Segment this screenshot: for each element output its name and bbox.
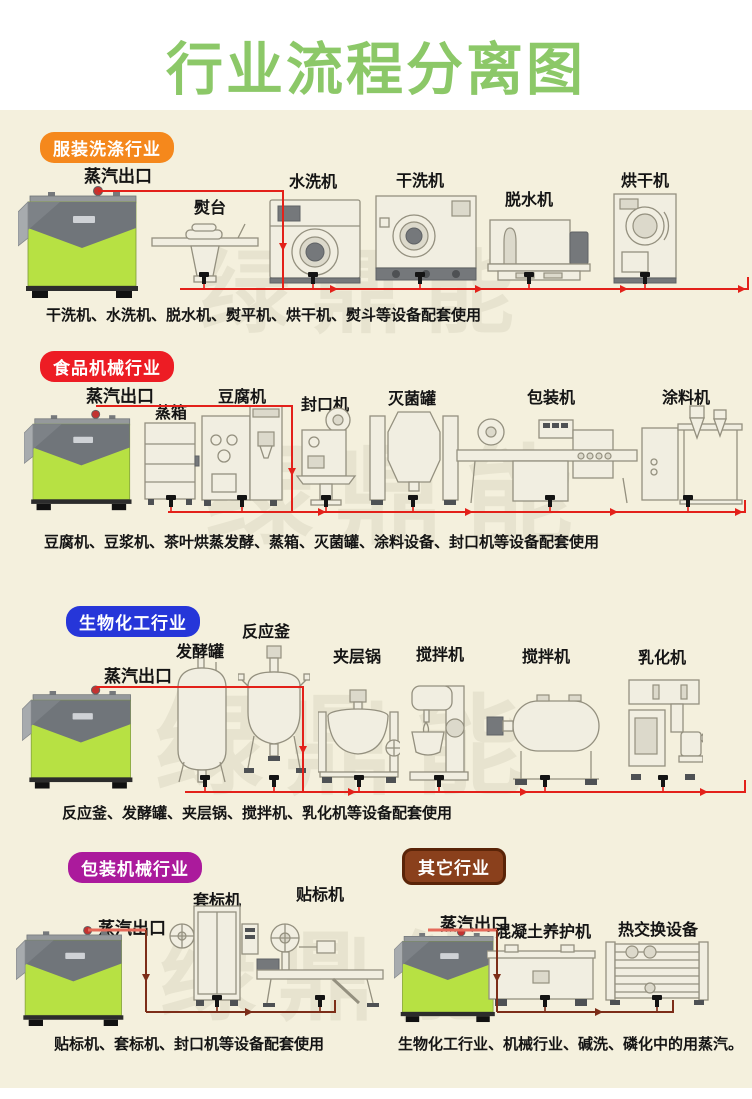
section-caption: 反应釜、发酵罐、夹层锅、搅拌机、乳化机等设备配套使用 xyxy=(62,802,452,823)
section-caption: 贴标机、套标机、封口机等设备配套使用 xyxy=(54,1033,324,1054)
section-caption: 豆腐机、豆浆机、茶叶烘蒸发酵、蒸箱、灭菌罐、涂料设备、封口机等设备配套使用 xyxy=(44,531,599,552)
machine-label: 贴标机 xyxy=(296,881,344,905)
section-other-industries: 其它行业 蒸汽出口 混凝土养护机 热交换设备 xyxy=(380,840,752,1088)
industry-badge: 食品机械行业 xyxy=(40,351,174,382)
dry-cleaning-machine-icon xyxy=(374,194,478,282)
concrete-curing-machine-icon xyxy=(487,943,597,1007)
sleeve-labeling-machine-icon xyxy=(168,902,266,1007)
section-packaging-machinery-industry: 包装机械行业 蒸汽出口 套标机 贴标机 xyxy=(0,840,380,1088)
steam-boiler-icon xyxy=(394,926,499,1024)
packing-machine-icon xyxy=(455,416,640,506)
steam-outlet-label: 蒸汽出口 xyxy=(84,162,152,187)
stand-mixer-icon xyxy=(406,676,472,786)
sealing-machine-icon xyxy=(295,406,357,506)
reactor-kettle-icon xyxy=(238,644,310,786)
section-caption: 生物化工行业、机械行业、碱洗、磷化中的用蒸汽。 xyxy=(398,1033,743,1054)
industry-badge: 服装洗涤行业 xyxy=(40,132,174,163)
drum-mixer-icon xyxy=(485,693,605,786)
coating-machine-icon xyxy=(640,404,745,506)
machine-label: 搅拌机 xyxy=(416,641,464,665)
poster-page: 行业流程分离图 绿鼎能 绿鼎能 绿鼎能 绿鼎能 服装洗涤行业 蒸汽出口 熨台 水… xyxy=(0,0,752,1099)
drying-machine-icon xyxy=(606,192,684,284)
section-laundry-industry: 服装洗涤行业 蒸汽出口 熨台 水洗机 干洗机 脱水机 烘干机 xyxy=(0,118,752,340)
section-caption: 干洗机、水洗机、脱水机、熨平机、烘干机、熨斗等设备配套使用 xyxy=(46,304,481,325)
machine-label: 水洗机 xyxy=(289,168,337,192)
machine-label: 搅拌机 xyxy=(522,643,570,667)
machine-label: 夹层锅 xyxy=(333,643,381,667)
steam-boiler-icon xyxy=(22,682,137,792)
industry-badge: 包装机械行业 xyxy=(68,852,202,883)
dehydrator-icon xyxy=(486,216,592,284)
steam-boiler-icon xyxy=(16,926,128,1026)
steam-boiler-icon xyxy=(18,186,143,298)
steam-boiler-icon xyxy=(24,403,136,517)
sterilization-tank-icon xyxy=(368,404,460,506)
page-title: 行业流程分离图 xyxy=(0,24,752,106)
machine-label: 热交换设备 xyxy=(618,916,698,940)
tofu-machine-icon xyxy=(200,404,285,506)
machine-label: 混凝土养护机 xyxy=(495,918,591,942)
fermentation-tank-icon xyxy=(172,658,232,786)
emulsifier-icon xyxy=(625,676,703,786)
machine-label: 反应釜 xyxy=(242,618,290,642)
machine-label: 乳化机 xyxy=(638,644,686,668)
jacketed-kettle-icon xyxy=(318,686,400,786)
machine-label: 烘干机 xyxy=(621,167,669,191)
ironing-table-icon xyxy=(150,222,260,284)
washing-machine-icon xyxy=(268,196,362,284)
section-biochemical-industry: 生物化工行业 蒸汽出口 发酵罐 反应釜 夹层锅 搅拌机 搅拌机 乳化机 xyxy=(0,598,752,840)
machine-label: 包装机 xyxy=(527,384,575,408)
industry-badge: 其它行业 xyxy=(402,848,506,885)
steam-cabinet-icon xyxy=(142,420,200,506)
machine-label: 干洗机 xyxy=(396,167,444,191)
labeling-machine-icon xyxy=(255,923,385,1007)
section-food-machinery-industry: 食品机械行业 蒸汽出口 蒸箱 豆腐机 封口机 灭菌罐 包装机 涂料机 xyxy=(0,340,752,570)
machine-label: 脱水机 xyxy=(505,186,553,210)
industry-badge: 生物化工行业 xyxy=(66,606,200,637)
machine-label: 熨台 xyxy=(194,194,226,218)
heat-exchanger-icon xyxy=(604,938,710,1007)
